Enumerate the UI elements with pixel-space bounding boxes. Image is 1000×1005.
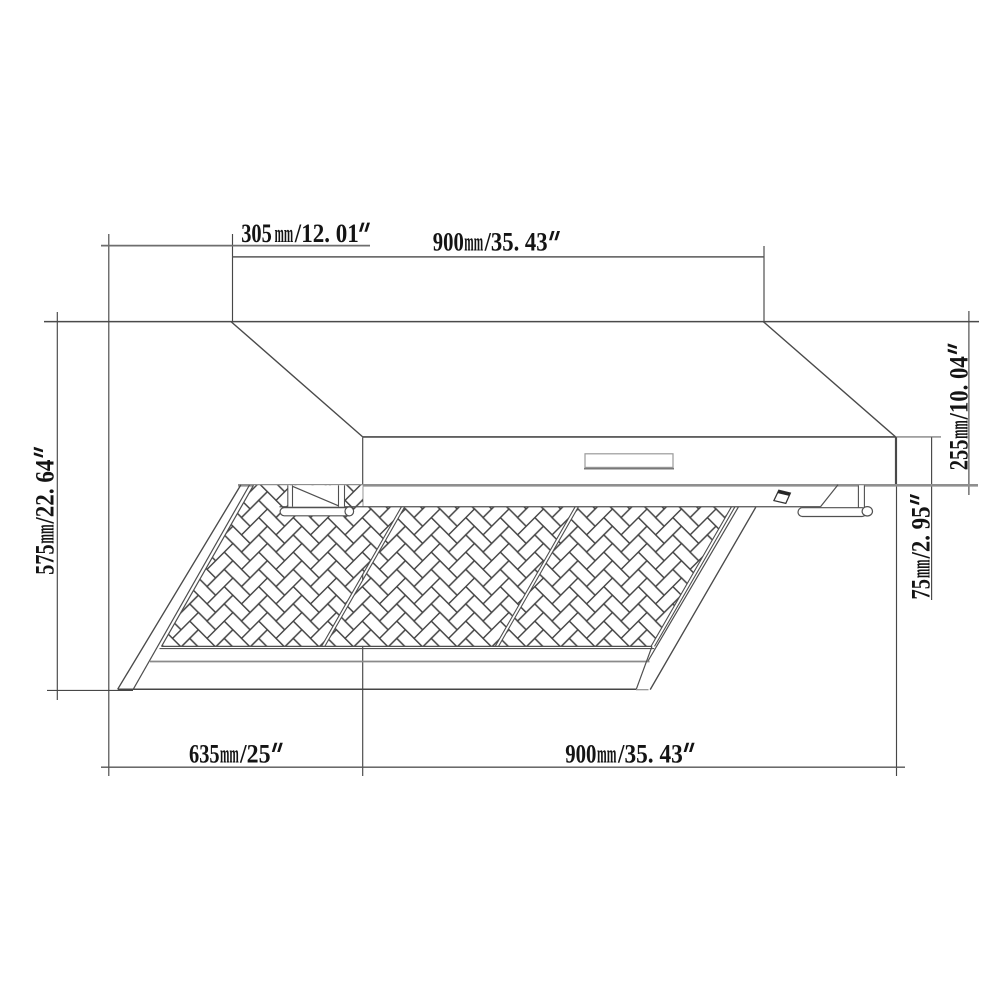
svg-text:mm: mm	[220, 738, 239, 768]
svg-text:mm: mm	[943, 420, 973, 438]
svg-text:/10. 04: /10. 04	[943, 356, 973, 420]
svg-text:/22. 64: /22. 64	[29, 460, 59, 525]
svg-text:/12. 01: /12. 01	[294, 218, 359, 248]
svg-text:900: 900	[433, 227, 464, 257]
svg-text:mm: mm	[464, 227, 483, 257]
svg-text:mm: mm	[597, 738, 616, 768]
svg-text:/35. 43: /35. 43	[484, 227, 548, 257]
svg-text:305: 305	[241, 218, 272, 248]
svg-text:900: 900	[565, 738, 596, 768]
svg-text:255: 255	[943, 440, 973, 471]
svg-text:/25: /25	[239, 738, 271, 768]
svg-text:mm: mm	[906, 560, 936, 579]
svg-text:635: 635	[189, 738, 220, 768]
svg-text:mm: mm	[29, 524, 59, 543]
svg-text:/35. 43: /35. 43	[617, 738, 683, 768]
svg-text:mm: mm	[275, 218, 294, 248]
svg-text:/2. 95: /2. 95	[906, 507, 936, 560]
svg-text:575: 575	[29, 544, 59, 574]
svg-text:75: 75	[906, 579, 936, 600]
